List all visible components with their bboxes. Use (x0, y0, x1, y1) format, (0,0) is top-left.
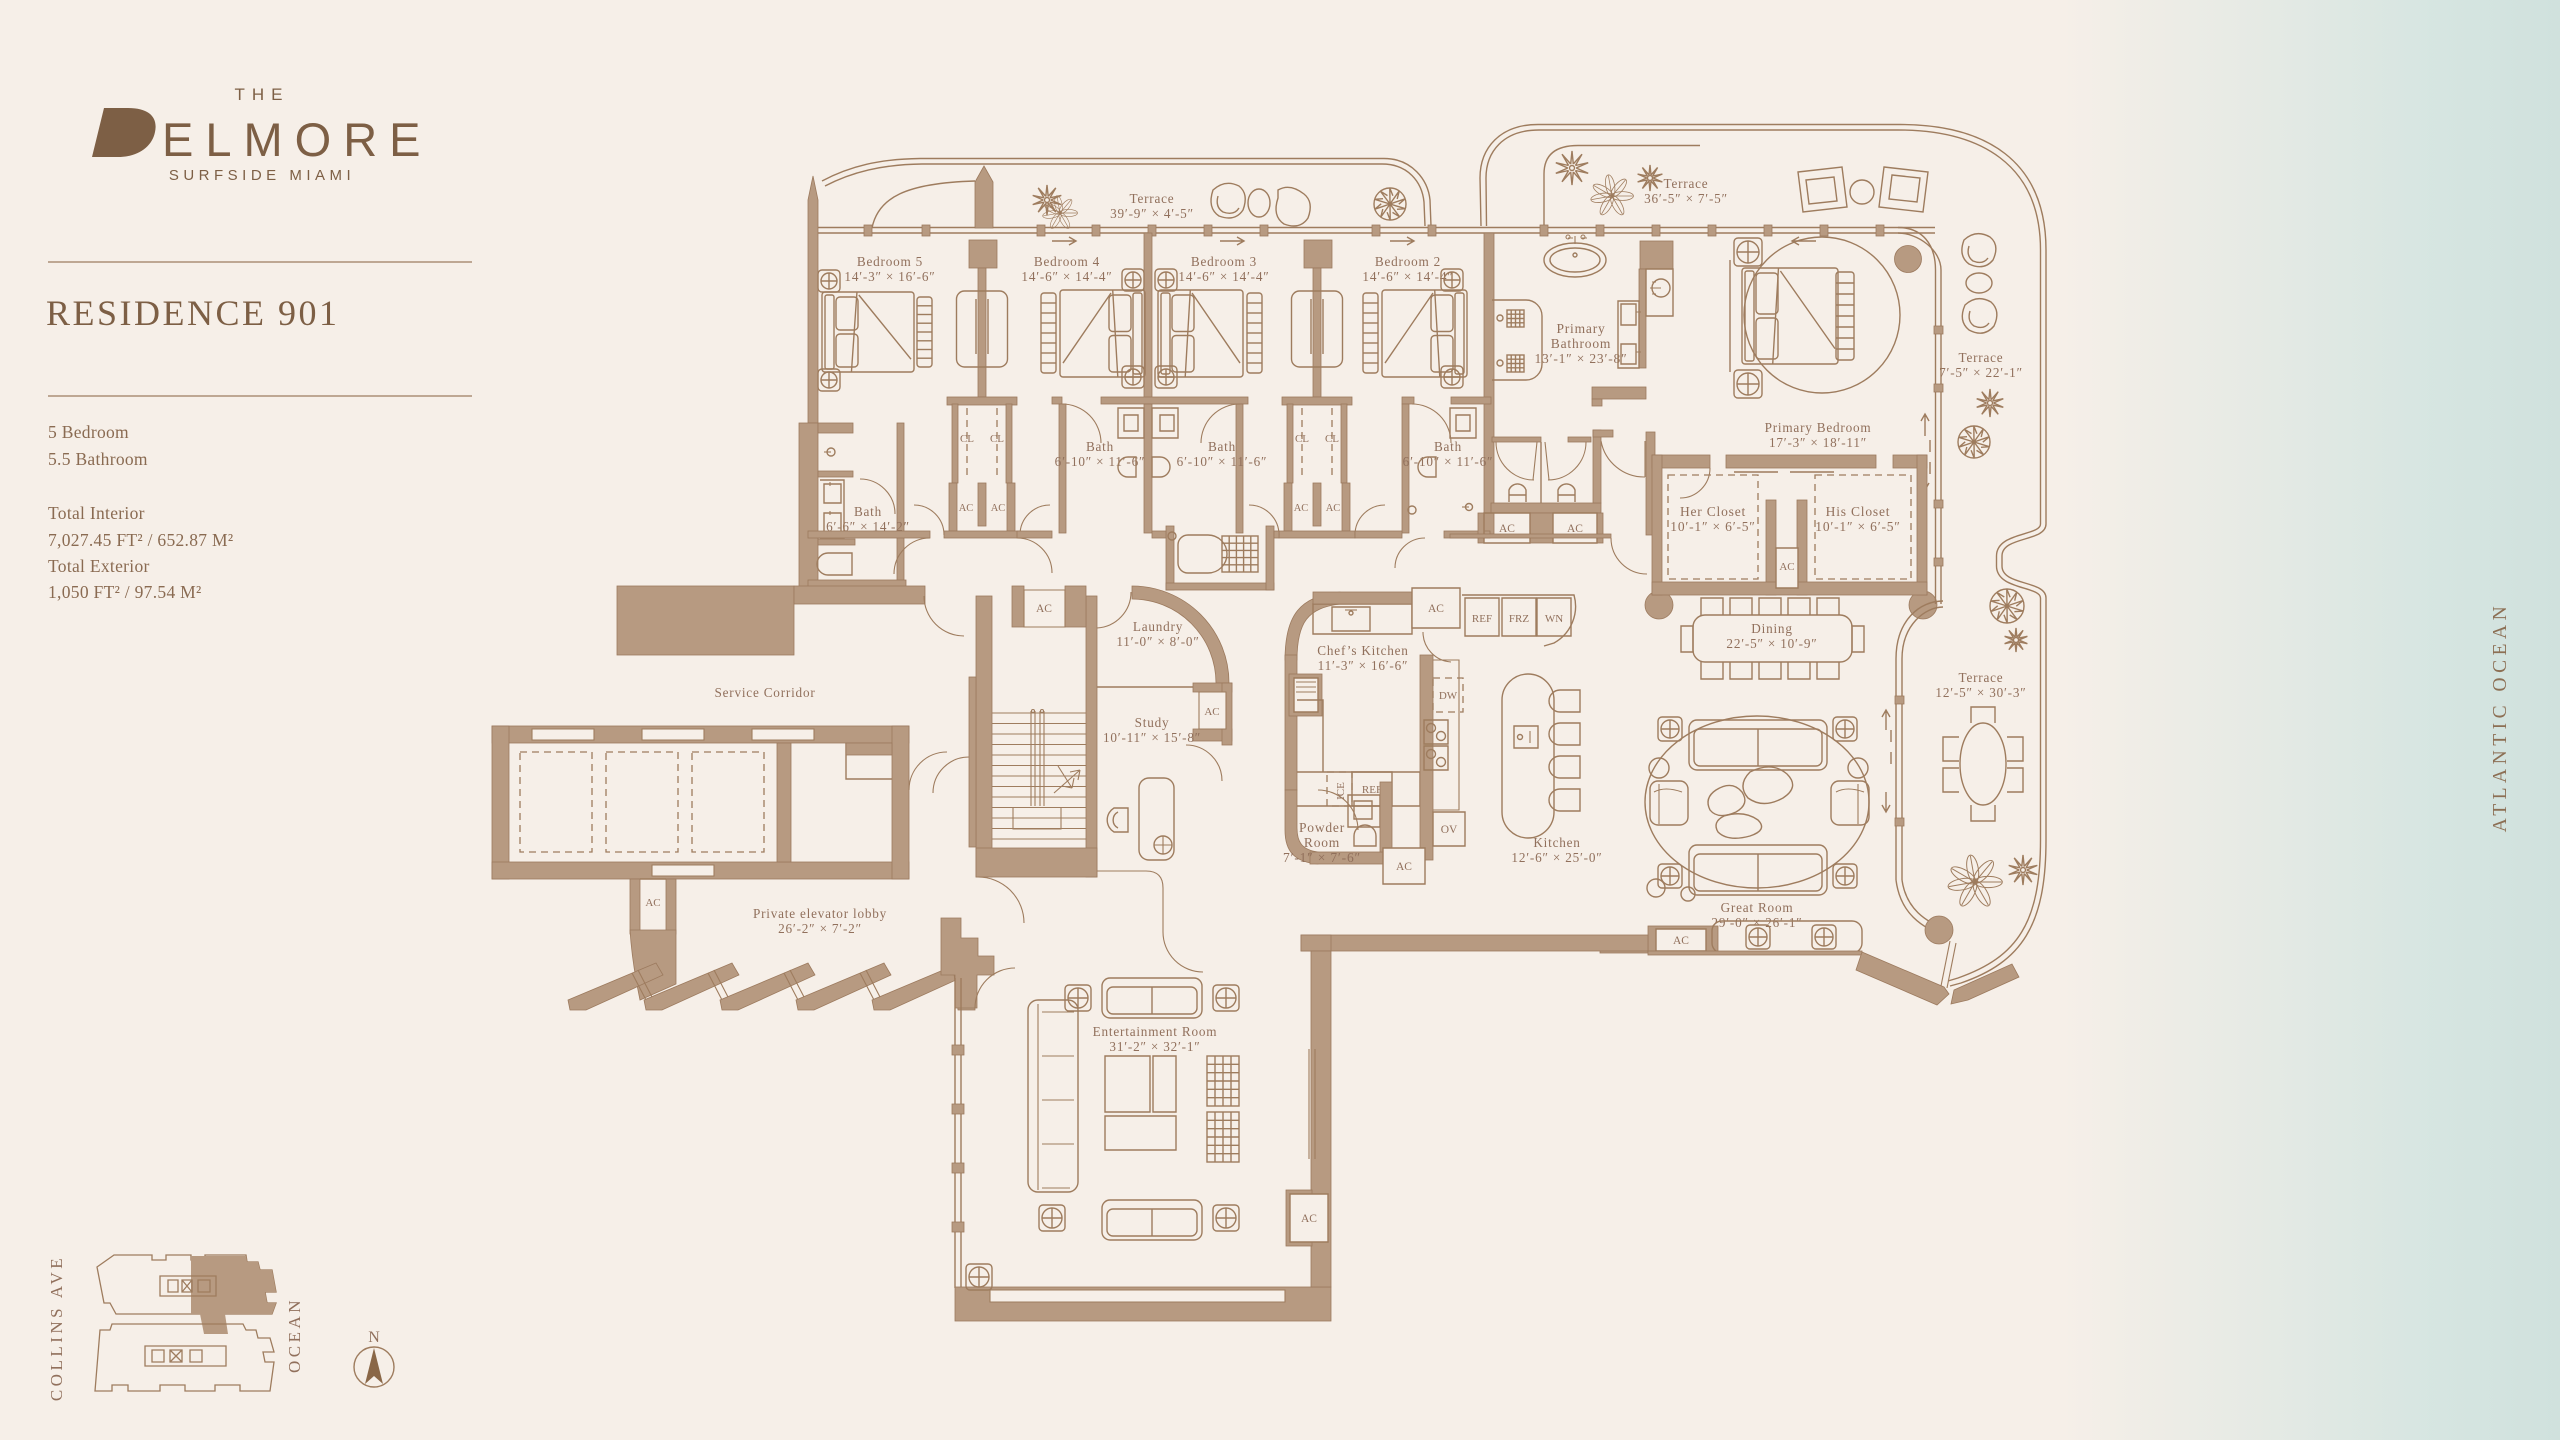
svg-text:Bath: Bath (854, 504, 882, 519)
svg-text:17′-3″ × 18′-11″: 17′-3″ × 18′-11″ (1769, 435, 1867, 450)
svg-text:26′-2″ × 7′-2″: 26′-2″ × 7′-2″ (778, 921, 862, 936)
svg-text:5 Bedroom: 5 Bedroom (48, 422, 129, 442)
svg-text:Bedroom 4: Bedroom 4 (1034, 254, 1100, 269)
svg-text:CL: CL (1295, 433, 1309, 445)
svg-text:CL: CL (960, 433, 974, 445)
svg-text:Terrace: Terrace (1959, 670, 2004, 685)
svg-text:AC: AC (1396, 861, 1412, 873)
svg-text:OCEAN: OCEAN (285, 1297, 304, 1373)
svg-text:39′-9″ × 4′-5″: 39′-9″ × 4′-5″ (1110, 206, 1194, 221)
svg-text:Her Closet: Her Closet (1680, 504, 1746, 519)
svg-text:AC: AC (1294, 503, 1309, 514)
svg-text:FRZ: FRZ (1509, 613, 1529, 625)
svg-text:COLLINS AVE: COLLINS AVE (47, 1255, 66, 1401)
svg-text:14′-6″ × 14′-4″: 14′-6″ × 14′-4″ (1021, 269, 1112, 284)
svg-text:AC: AC (1326, 503, 1341, 514)
svg-text:AC: AC (1673, 935, 1689, 947)
svg-text:AC: AC (959, 503, 974, 514)
svg-text:RESIDENCE 901: RESIDENCE 901 (46, 293, 340, 333)
svg-text:AC: AC (1204, 706, 1219, 718)
svg-text:N: N (368, 1329, 380, 1346)
svg-text:CL: CL (990, 433, 1004, 445)
svg-text:1,050 FT² / 97.54 M²: 1,050 FT² / 97.54 M² (48, 582, 202, 602)
svg-text:WN: WN (1545, 613, 1563, 625)
svg-text:7′-1″ × 7′-6″: 7′-1″ × 7′-6″ (1283, 850, 1361, 865)
svg-text:AC: AC (1301, 1213, 1317, 1225)
svg-text:36′-5″ × 7′-5″: 36′-5″ × 7′-5″ (1644, 191, 1728, 206)
svg-text:11′-0″ × 8′-0″: 11′-0″ × 8′-0″ (1116, 634, 1199, 649)
svg-text:5.5 Bathroom: 5.5 Bathroom (48, 449, 148, 469)
svg-text:ELMORE: ELMORE (162, 113, 433, 166)
svg-text:6′-10″ × 11′-6″: 6′-10″ × 11′-6″ (1055, 454, 1146, 469)
svg-text:Private elevator lobby: Private elevator lobby (753, 906, 887, 921)
svg-text:10′-1″ × 6′-5″: 10′-1″ × 6′-5″ (1815, 519, 1900, 534)
svg-text:Powder: Powder (1299, 820, 1345, 835)
svg-text:Bedroom 3: Bedroom 3 (1191, 254, 1257, 269)
svg-text:31′-2″ × 32′-1″: 31′-2″ × 32′-1″ (1109, 1039, 1200, 1054)
svg-text:REF: REF (1472, 613, 1492, 625)
svg-text:Bedroom 2: Bedroom 2 (1375, 254, 1441, 269)
svg-text:Terrace: Terrace (1664, 176, 1709, 191)
svg-text:Great Room: Great Room (1721, 900, 1794, 915)
svg-text:12′-6″ × 25′-0″: 12′-6″ × 25′-0″ (1511, 850, 1602, 865)
svg-text:Bath: Bath (1208, 439, 1236, 454)
svg-text:DW: DW (1439, 690, 1458, 702)
svg-text:Total Exterior: Total Exterior (48, 556, 150, 576)
svg-text:AC: AC (991, 503, 1006, 514)
svg-text:Study: Study (1135, 715, 1170, 730)
svg-text:14′-3″ × 16′-6″: 14′-3″ × 16′-6″ (844, 269, 935, 284)
svg-text:11′-3″ × 16′-6″: 11′-3″ × 16′-6″ (1318, 658, 1409, 673)
svg-text:Laundry: Laundry (1133, 619, 1183, 634)
svg-text:10′-11″ × 15′-8″: 10′-11″ × 15′-8″ (1103, 730, 1201, 745)
svg-text:6′-10″ × 11′-6″: 6′-10″ × 11′-6″ (1403, 454, 1494, 469)
svg-text:Bedroom 5: Bedroom 5 (857, 254, 923, 269)
svg-text:Bathroom: Bathroom (1551, 336, 1611, 351)
svg-text:Total Interior: Total Interior (48, 503, 145, 523)
svg-text:7′-5″ × 22′-1″: 7′-5″ × 22′-1″ (1939, 365, 2023, 380)
svg-text:7,027.45 FT² / 652.87 M²: 7,027.45 FT² / 652.87 M² (48, 530, 233, 550)
svg-text:14′-6″ × 14′-4″: 14′-6″ × 14′-4″ (1178, 269, 1269, 284)
svg-text:Room: Room (1304, 835, 1340, 850)
svg-text:Kitchen: Kitchen (1533, 835, 1580, 850)
svg-text:REF: REF (1362, 784, 1382, 796)
svg-text:Bath: Bath (1434, 439, 1462, 454)
svg-text:Bath: Bath (1086, 439, 1114, 454)
svg-text:AC: AC (1567, 523, 1583, 535)
svg-text:SURFSIDE MIAMI: SURFSIDE MIAMI (169, 167, 355, 184)
svg-text:10′-1″ × 6′-5″: 10′-1″ × 6′-5″ (1670, 519, 1755, 534)
svg-text:ATLANTIC OCEAN: ATLANTIC OCEAN (2490, 602, 2511, 832)
svg-text:AC: AC (1499, 523, 1515, 535)
svg-text:AC: AC (645, 897, 660, 909)
svg-text:CL: CL (1325, 433, 1339, 445)
svg-text:14′-6″ × 14′-4″: 14′-6″ × 14′-4″ (1362, 269, 1453, 284)
svg-text:Primary: Primary (1556, 321, 1605, 336)
svg-text:Terrace: Terrace (1959, 350, 2004, 365)
svg-text:12′-5″ × 30′-3″: 12′-5″ × 30′-3″ (1935, 685, 2026, 700)
svg-text:AC: AC (1779, 561, 1794, 573)
svg-text:13′-1″ × 23′-8″: 13′-1″ × 23′-8″ (1534, 351, 1627, 366)
svg-text:Service Corridor: Service Corridor (714, 685, 815, 700)
svg-text:AC: AC (1036, 603, 1052, 615)
svg-text:THE: THE (235, 85, 290, 104)
svg-text:AC: AC (1428, 603, 1444, 615)
svg-text:Entertainment Room: Entertainment Room (1093, 1024, 1218, 1039)
svg-text:Dining: Dining (1751, 621, 1792, 636)
svg-text:Chef’s Kitchen: Chef’s Kitchen (1317, 643, 1408, 658)
svg-text:6′-10″ × 11′-6″: 6′-10″ × 11′-6″ (1177, 454, 1268, 469)
svg-text:Terrace: Terrace (1130, 191, 1175, 206)
svg-text:His Closet: His Closet (1826, 504, 1891, 519)
svg-text:Primary Bedroom: Primary Bedroom (1765, 420, 1872, 435)
svg-text:OV: OV (1441, 824, 1458, 836)
svg-text:22′-5″ × 10′-9″: 22′-5″ × 10′-9″ (1726, 636, 1817, 651)
